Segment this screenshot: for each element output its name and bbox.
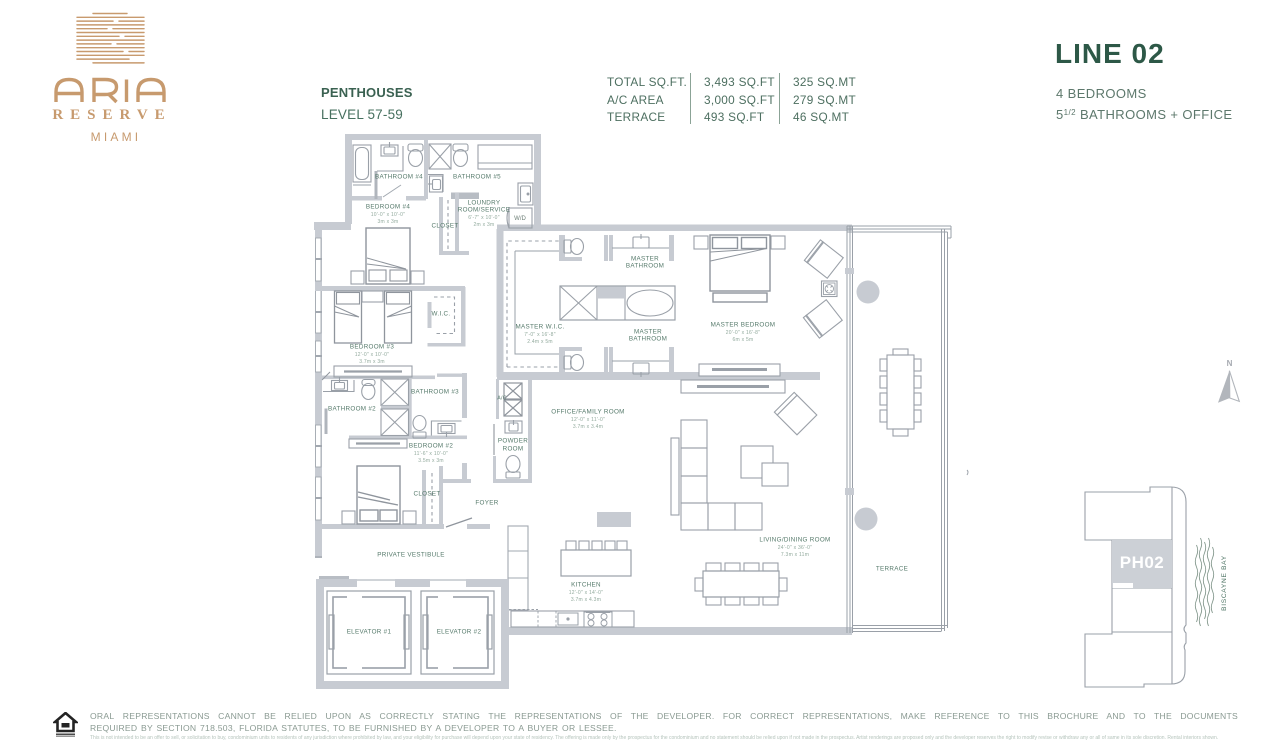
svg-text:OFFICE/FAMILY ROOM: OFFICE/FAMILY ROOM (551, 409, 624, 416)
svg-text:6m x 5m: 6m x 5m (733, 337, 754, 343)
svg-text:7.3m x 11m: 7.3m x 11m (781, 552, 809, 558)
svg-text:BEDROOM #4: BEDROOM #4 (366, 204, 410, 211)
svg-text:3.7m x 3m: 3.7m x 3m (359, 359, 385, 365)
svg-text:BATHROOM #4: BATHROOM #4 (375, 174, 423, 181)
svg-text:10'-0" x 10'-0": 10'-0" x 10'-0" (371, 212, 406, 218)
svg-text:ROOM/SERVICE: ROOM/SERVICE (458, 207, 510, 214)
svg-text:3.7m x 4.3m: 3.7m x 4.3m (571, 597, 601, 603)
svg-text:ELEVATOR #2: ELEVATOR #2 (437, 629, 482, 636)
svg-text:BISCAYNE BAY: BISCAYNE BAY (1221, 555, 1228, 611)
svg-text:7'-0" x 16'-8": 7'-0" x 16'-8" (524, 332, 555, 338)
svg-text:CLOSET: CLOSET (432, 223, 459, 230)
svg-text:24'-0" x 36'-0": 24'-0" x 36'-0" (778, 545, 813, 551)
svg-text:20'-0" x 16'-8": 20'-0" x 16'-8" (726, 330, 761, 336)
svg-text:BEDROOM #2: BEDROOM #2 (409, 443, 453, 450)
svg-text:12'-0" x 10'-0": 12'-0" x 10'-0" (355, 352, 390, 358)
svg-text:ELEVATOR #1: ELEVATOR #1 (347, 629, 392, 636)
svg-text:W.I.C.: W.I.C. (432, 311, 451, 318)
svg-text:MASTER W.I.C.: MASTER W.I.C. (515, 324, 564, 331)
svg-text:BATHROOM #3: BATHROOM #3 (411, 389, 459, 396)
svg-text:LIVING/DINING ROOM: LIVING/DINING ROOM (759, 537, 830, 544)
svg-text:FOYER: FOYER (475, 500, 498, 507)
svg-text:KITCHEN: KITCHEN (571, 582, 601, 589)
svg-text:BATHROOM: BATHROOM (629, 336, 667, 343)
svg-text:3m x 3m: 3m x 3m (378, 219, 399, 225)
svg-text:POWDER: POWDER (498, 438, 528, 445)
svg-text:A/C: A/C (497, 396, 507, 402)
svg-text:W/D: W/D (514, 216, 526, 222)
svg-text:12'-0" x 11'-0": 12'-0" x 11'-0" (571, 417, 605, 423)
svg-text:BATHROOM #2: BATHROOM #2 (328, 406, 376, 413)
svg-text:BATHROOM: BATHROOM (626, 263, 664, 270)
svg-text:3.7m x 3.4m: 3.7m x 3.4m (573, 424, 603, 430)
svg-text:LOUNDRY: LOUNDRY (468, 200, 501, 207)
svg-text:MASTER BEDROOM: MASTER BEDROOM (711, 322, 776, 329)
svg-text:2.4m x 5m: 2.4m x 5m (527, 339, 553, 345)
svg-text:TERRACE: TERRACE (876, 566, 908, 573)
svg-text:N: N (1227, 359, 1233, 368)
svg-text:11'-6" x 10'-0": 11'-6" x 10'-0" (414, 451, 448, 457)
svg-text:ROOM: ROOM (503, 446, 524, 453)
svg-text:BATHROOM #5: BATHROOM #5 (453, 174, 501, 181)
svg-text:PRIVATE VESTIBULE: PRIVATE VESTIBULE (377, 552, 445, 559)
svg-text:CLOSET: CLOSET (414, 491, 441, 498)
svg-text:MASTER: MASTER (634, 329, 662, 336)
svg-text:PH02: PH02 (1120, 553, 1165, 572)
svg-text:MASTER: MASTER (631, 256, 659, 263)
svg-text:6'-7" x 10'-0": 6'-7" x 10'-0" (468, 215, 499, 221)
svg-text:12'-0" x 14'-0": 12'-0" x 14'-0" (569, 590, 604, 596)
svg-text:2m x 3m: 2m x 3m (474, 222, 495, 228)
svg-text:BEDROOM #3: BEDROOM #3 (350, 344, 394, 351)
svg-text:3.5m x 3m: 3.5m x 3m (418, 458, 444, 464)
